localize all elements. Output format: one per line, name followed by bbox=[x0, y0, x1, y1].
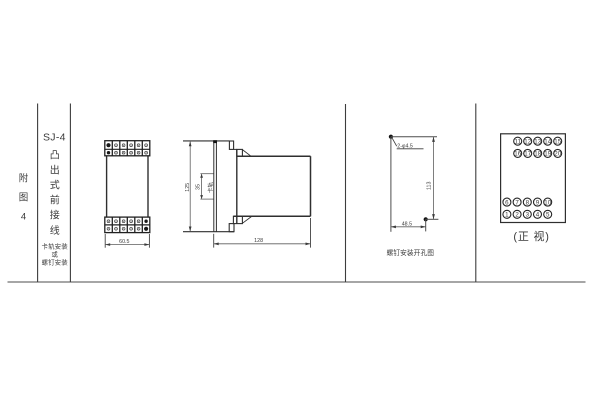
svg-text:17: 17 bbox=[524, 151, 531, 158]
svg-text:2-φ4.5: 2-φ4.5 bbox=[397, 144, 413, 150]
svg-text:接: 接 bbox=[50, 209, 60, 222]
svg-text:13: 13 bbox=[534, 138, 541, 145]
svg-text:螺钉安装开孔图: 螺钉安装开孔图 bbox=[387, 248, 435, 257]
svg-text:SJ-4: SJ-4 bbox=[43, 132, 66, 144]
svg-text:14: 14 bbox=[544, 138, 551, 145]
svg-text:(正 视): (正 视) bbox=[513, 229, 549, 243]
svg-text:6: 6 bbox=[505, 199, 509, 206]
svg-text:11: 11 bbox=[514, 138, 521, 145]
svg-text:125: 125 bbox=[185, 183, 191, 192]
svg-text:图: 图 bbox=[19, 193, 29, 204]
svg-text:113: 113 bbox=[426, 182, 432, 190]
svg-text:35: 35 bbox=[195, 184, 201, 190]
svg-text:20: 20 bbox=[554, 151, 561, 158]
svg-text:4: 4 bbox=[536, 212, 540, 219]
svg-text:出: 出 bbox=[50, 164, 60, 177]
svg-text:9: 9 bbox=[536, 199, 540, 206]
svg-text:15: 15 bbox=[554, 138, 561, 145]
svg-text:5: 5 bbox=[546, 212, 550, 219]
svg-text:8: 8 bbox=[526, 199, 530, 206]
svg-text:60.5: 60.5 bbox=[119, 239, 129, 245]
svg-text:7: 7 bbox=[515, 199, 519, 206]
svg-text:线: 线 bbox=[50, 224, 60, 237]
svg-text:3: 3 bbox=[526, 212, 530, 219]
svg-text:1: 1 bbox=[505, 212, 509, 219]
svg-text:卡轨: 卡轨 bbox=[206, 182, 214, 194]
svg-text:卡轨安装: 卡轨安装 bbox=[42, 241, 69, 250]
svg-text:48.5: 48.5 bbox=[402, 222, 412, 228]
svg-text:2: 2 bbox=[515, 212, 519, 219]
svg-text:凸: 凸 bbox=[50, 150, 60, 162]
svg-text:4: 4 bbox=[21, 212, 26, 223]
svg-text:19: 19 bbox=[544, 151, 551, 158]
svg-text:附: 附 bbox=[19, 173, 29, 185]
svg-text:128: 128 bbox=[254, 238, 263, 244]
svg-text:12: 12 bbox=[524, 138, 531, 145]
svg-text:18: 18 bbox=[534, 151, 541, 158]
svg-text:式: 式 bbox=[50, 179, 60, 192]
svg-text:16: 16 bbox=[514, 151, 521, 158]
svg-text:或: 或 bbox=[51, 249, 58, 258]
svg-text:10: 10 bbox=[544, 199, 551, 206]
svg-text:前: 前 bbox=[50, 194, 60, 207]
svg-text:螺钉安装: 螺钉安装 bbox=[42, 258, 69, 267]
